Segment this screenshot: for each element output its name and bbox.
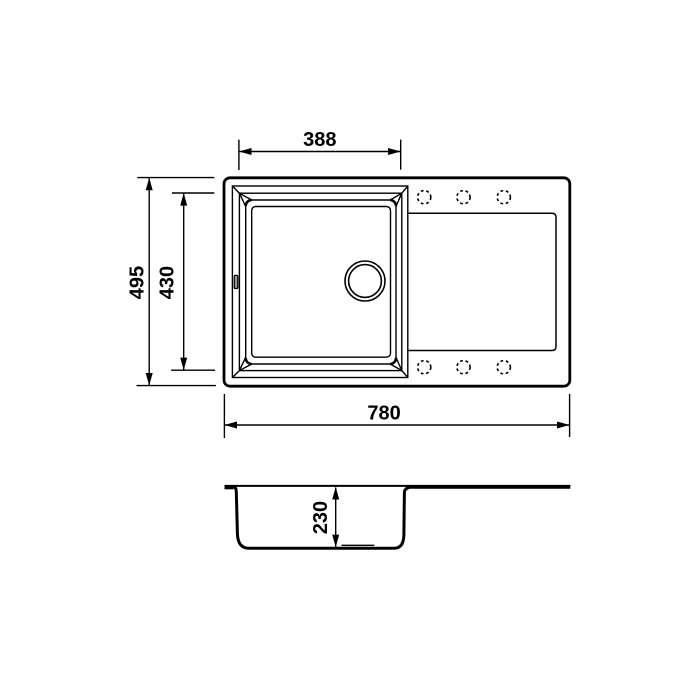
svg-text:430: 430 [157,266,179,299]
svg-text:388: 388 [303,129,336,151]
svg-text:780: 780 [367,402,400,424]
svg-text:230: 230 [310,501,332,534]
svg-text:495: 495 [127,266,149,299]
